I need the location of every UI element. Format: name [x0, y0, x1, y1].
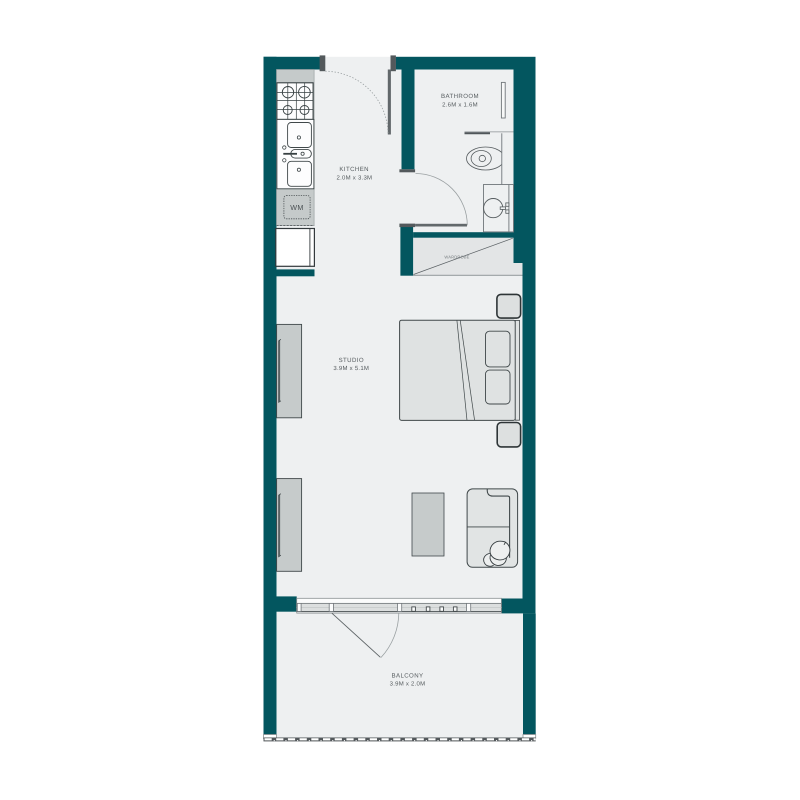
svg-text:WARDROBE: WARDROBE	[444, 255, 469, 260]
svg-text:WM: WM	[290, 203, 304, 212]
svg-text:KITCHEN: KITCHEN	[339, 166, 369, 173]
svg-text:3.9M x 5.1M: 3.9M x 5.1M	[333, 365, 369, 372]
svg-text:3.9M x 2.0M: 3.9M x 2.0M	[390, 680, 426, 687]
svg-text:2.6M x 1.6M: 2.6M x 1.6M	[442, 101, 478, 108]
svg-text:BATHROOM: BATHROOM	[441, 93, 479, 100]
svg-text:2.0M x 3.3M: 2.0M x 3.3M	[337, 174, 373, 181]
svg-text:STUDIO: STUDIO	[339, 357, 364, 364]
svg-text:BALCONY: BALCONY	[392, 672, 424, 679]
